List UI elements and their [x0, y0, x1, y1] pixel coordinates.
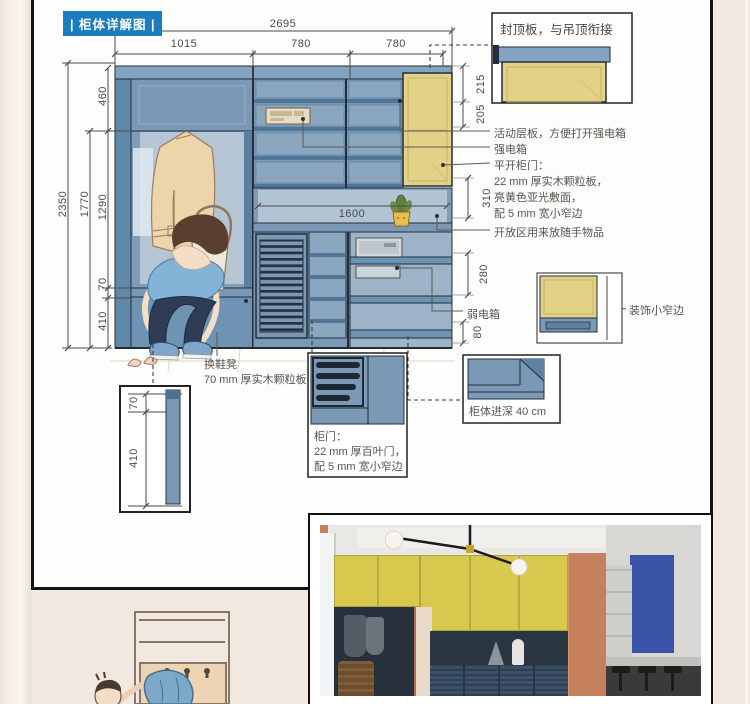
photo-display-niche	[430, 631, 568, 665]
dim-open-height: 1290	[97, 194, 109, 220]
dim-col2: 780	[291, 38, 311, 50]
note-louver-line1: 22 mm 厚百叶门，	[314, 443, 406, 459]
note-swing-door-title: 平开柜门：	[494, 157, 549, 173]
note-louver-line2: 配 5 mm 宽小窄边	[314, 458, 403, 474]
entryway-photo	[320, 525, 701, 696]
note-open-area: 开放区用来放随手物品	[494, 224, 604, 240]
dim-total-width: 2695	[270, 18, 296, 30]
dim-total-height: 2350	[57, 191, 69, 217]
section-title-badge: | 柜体详解图 |	[63, 11, 162, 36]
photo-frame	[308, 513, 713, 704]
note-cap-board: 封顶板，与吊顶衔接	[500, 19, 613, 38]
pendant-lamp	[320, 525, 701, 595]
note-strong-box: 强电箱	[494, 141, 527, 157]
note-swing-door-line3: 配 5 mm 宽小窄边	[494, 205, 583, 221]
note-bench-board: 70 mm 厚实木颗粒板	[204, 371, 307, 387]
dim-right-310: 310	[481, 188, 493, 208]
page: | 柜体详解图 | 2695 1015 780 780 2350 1770 46…	[0, 0, 750, 704]
note-swing-door-line1: 22 mm 厚实木颗粒板，	[494, 173, 608, 189]
dim-top-cab: 460	[97, 86, 109, 106]
note-depth: 柜体进深 40 cm	[469, 403, 546, 419]
hallway-illustration	[0, 580, 320, 704]
dim-right-280: 280	[478, 264, 490, 284]
cabinet-technical-drawing	[0, 0, 750, 600]
bar-stool	[612, 666, 630, 673]
dim-open-total: 1770	[79, 191, 91, 217]
dim-col3: 780	[386, 38, 406, 50]
note-weak-box: 弱电箱	[467, 306, 500, 322]
note-bench: 换鞋凳	[204, 356, 237, 372]
note-swing-door-line2: 亮黄色亚光敷面，	[494, 189, 582, 205]
deer-figurine	[488, 641, 504, 665]
photo-counter	[606, 657, 701, 666]
dim-bench-top: 70	[97, 277, 109, 290]
rabbit-figurine	[512, 639, 524, 665]
yellow-swing-door	[403, 73, 452, 186]
note-deco-edge: 装饰小窄边	[629, 302, 684, 318]
bar-stool	[638, 666, 656, 673]
dim-bench-detail-410: 410	[128, 448, 140, 468]
louver-door	[256, 234, 307, 338]
dim-bench-detail-70: 70	[128, 396, 140, 409]
dim-right-215: 215	[475, 74, 487, 94]
photo-coat-nook	[334, 607, 414, 696]
bar-stool	[664, 666, 682, 673]
dim-right-205: 205	[475, 104, 487, 124]
dim-bench-height: 410	[97, 311, 109, 331]
dim-right-80: 80	[472, 325, 484, 338]
callout-deco-edge	[537, 273, 622, 343]
note-movable-shelf: 活动层板，方便打开强电箱	[494, 125, 626, 141]
dim-shelf-width: 1600	[339, 208, 365, 220]
note-louver-title: 柜门：	[314, 428, 347, 444]
photo-navy-louver-cabinet	[430, 665, 568, 696]
dim-col1: 1015	[171, 38, 197, 50]
